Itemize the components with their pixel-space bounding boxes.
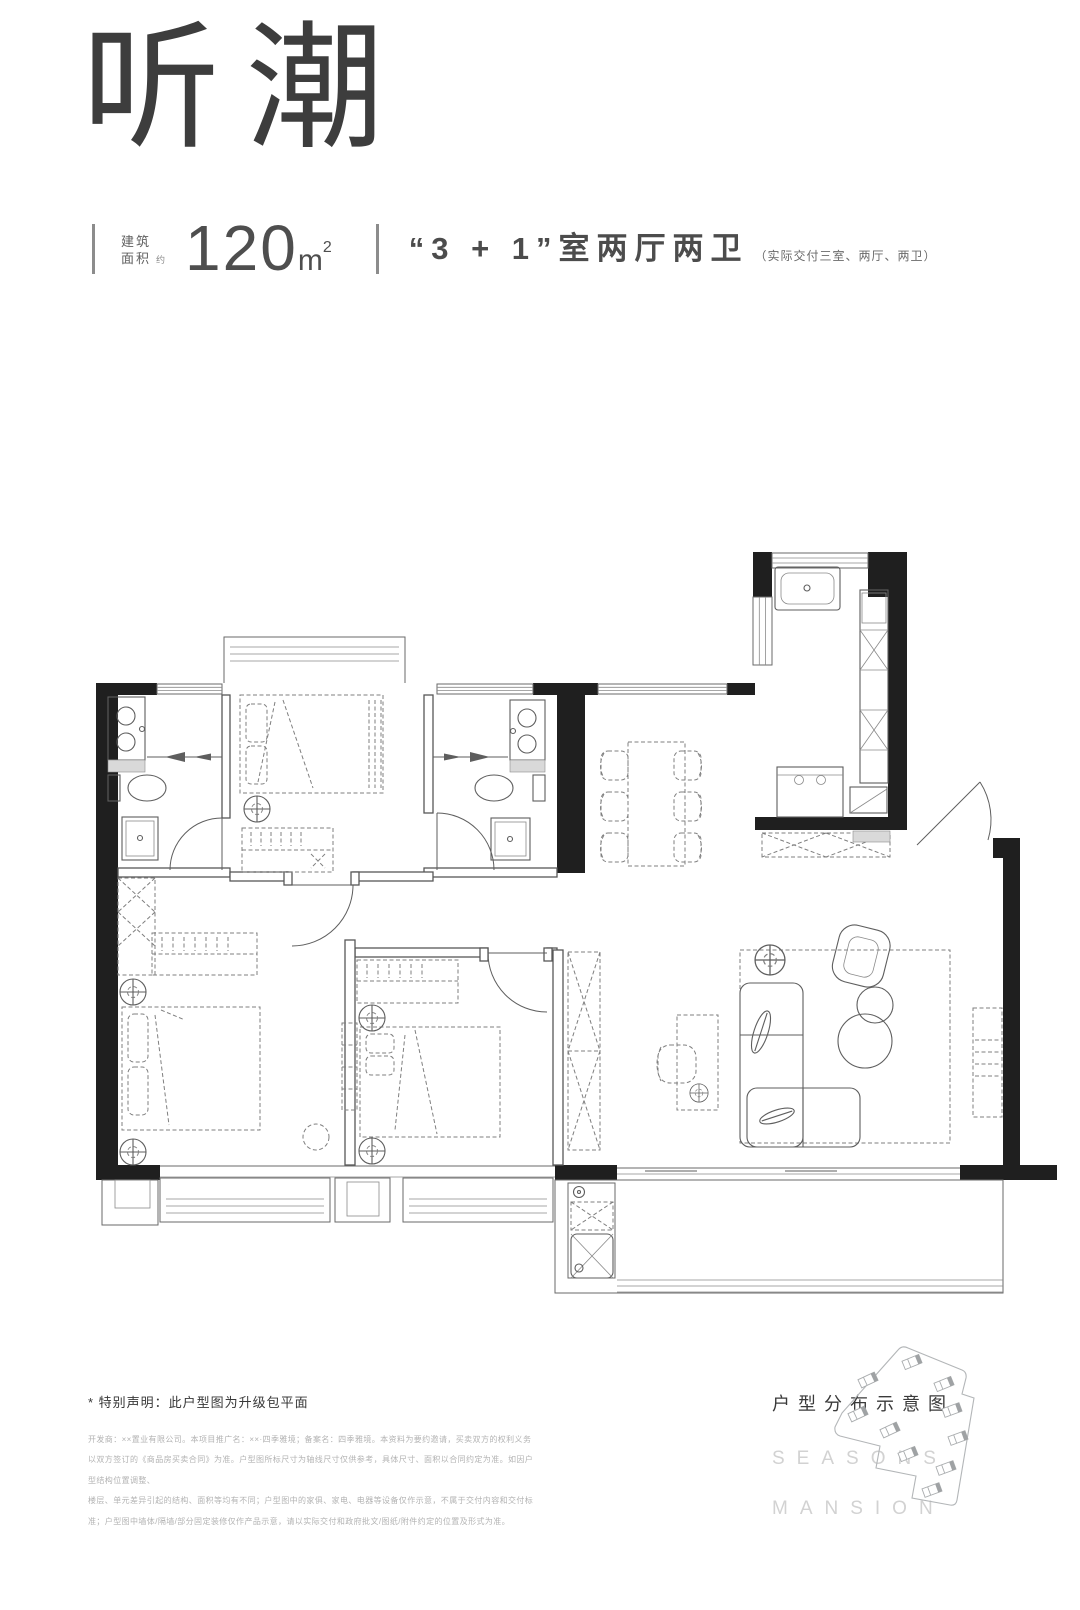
divider-bar (376, 224, 379, 274)
bedroom-1 (240, 695, 383, 872)
divider-bar (92, 224, 95, 274)
area-approx: 约 (156, 255, 165, 265)
spec-row: 建筑 面积约 120m2 “3 + 1”室两厅两卫 （实际交付三室、两厅、两卫） (92, 204, 937, 278)
bedroom-2 (118, 878, 357, 1165)
site-plan-diagram (812, 1318, 1002, 1533)
interior-walls (118, 695, 563, 1177)
disclaimer-title: * 特别声明：此户型图为升级包平面 (88, 1392, 309, 1411)
bedroom-3 (357, 960, 500, 1164)
area-unit-sup: 2 (323, 239, 332, 256)
disclaimer-line: 以双方签订的《商品房买卖合同》为准。户型图所标尺寸为轴线尺寸仅供参考，具体尺寸、… (88, 1455, 533, 1484)
site-plan-units (848, 1354, 968, 1497)
armchair (829, 922, 893, 991)
disclaimer-text: 开发商：××置业有限公司。本项目推广名：××·四季雅境；备案名：四季雅境。本资料… (88, 1430, 540, 1532)
disclaimer-line: 准；户型图中墙体/隔墙/部分固定装修仅作产品示意，请以实际交付和政府批文/图纸/… (88, 1517, 510, 1526)
layout-note: （实际交付三室、两厅、两卫） (755, 247, 937, 264)
dining-area (601, 742, 702, 866)
area-label: 建筑 面积约 (121, 233, 165, 268)
page-title: 听潮 (82, 10, 410, 169)
windows (102, 553, 868, 1225)
bathroom-2 (475, 700, 545, 860)
area-label-top: 建筑 (121, 234, 151, 249)
exterior-walls (96, 552, 1057, 1180)
kitchen (775, 567, 888, 817)
entry (762, 831, 890, 857)
area-unit: m (298, 244, 323, 277)
layout-text: “3 + 1”室两厅两卫 (409, 223, 749, 268)
balcony (555, 1180, 1003, 1293)
living-room (568, 922, 1002, 1150)
area-number: 120 (185, 212, 298, 284)
area-value: 120m2 (185, 219, 332, 278)
disclaimer-line: 开发商：××置业有限公司。本项目推广名：××·四季雅境；备案名：四季雅境。本资料… (88, 1435, 531, 1444)
disclaimer-line: 楼层、单元差异引起的结构、面积等均有不同；户型图中的家俱、家电、电器等设备仅作示… (88, 1496, 533, 1505)
floor-plan (85, 520, 1065, 1310)
area-label-bottom: 面积 (121, 251, 151, 266)
